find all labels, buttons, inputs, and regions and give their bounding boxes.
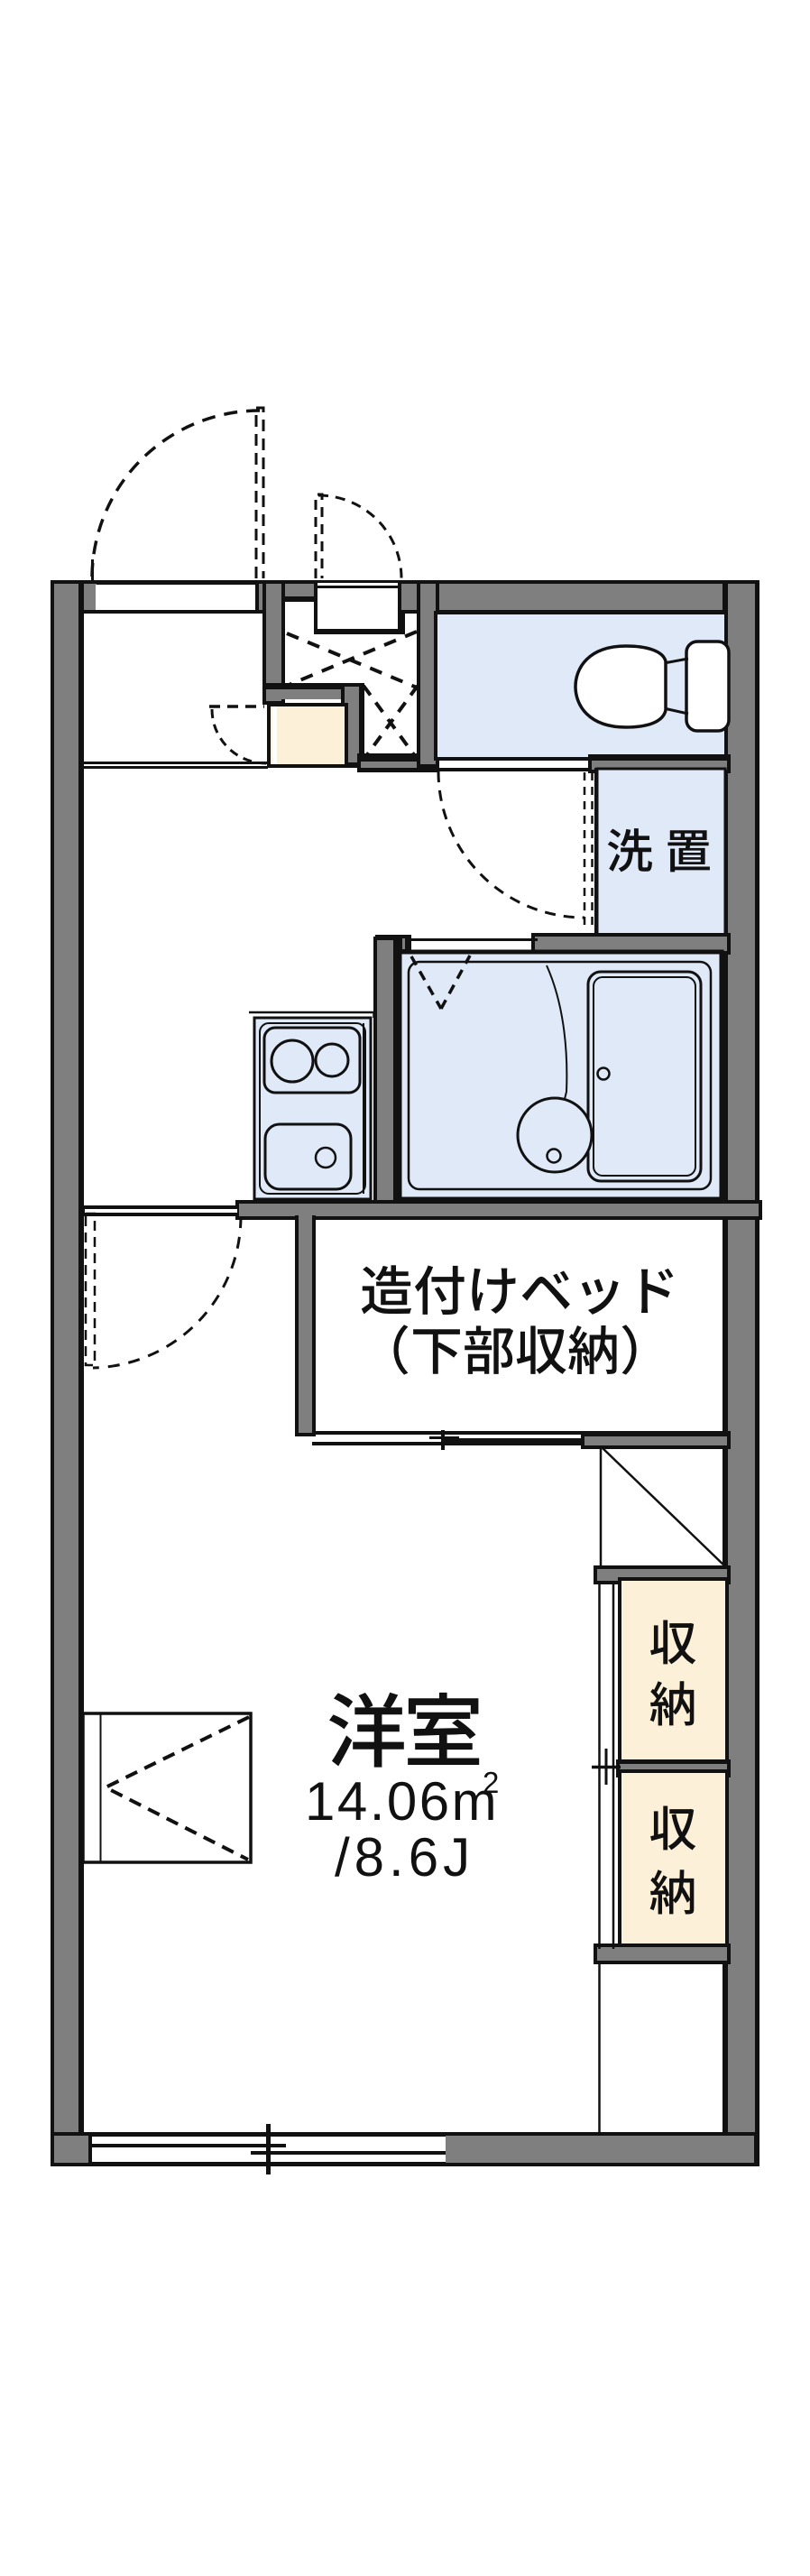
svg-text:2: 2: [483, 1766, 499, 1799]
svg-text:14.06m: 14.06m: [305, 1771, 499, 1832]
svg-text:/8.6J: /8.6J: [335, 1827, 474, 1888]
